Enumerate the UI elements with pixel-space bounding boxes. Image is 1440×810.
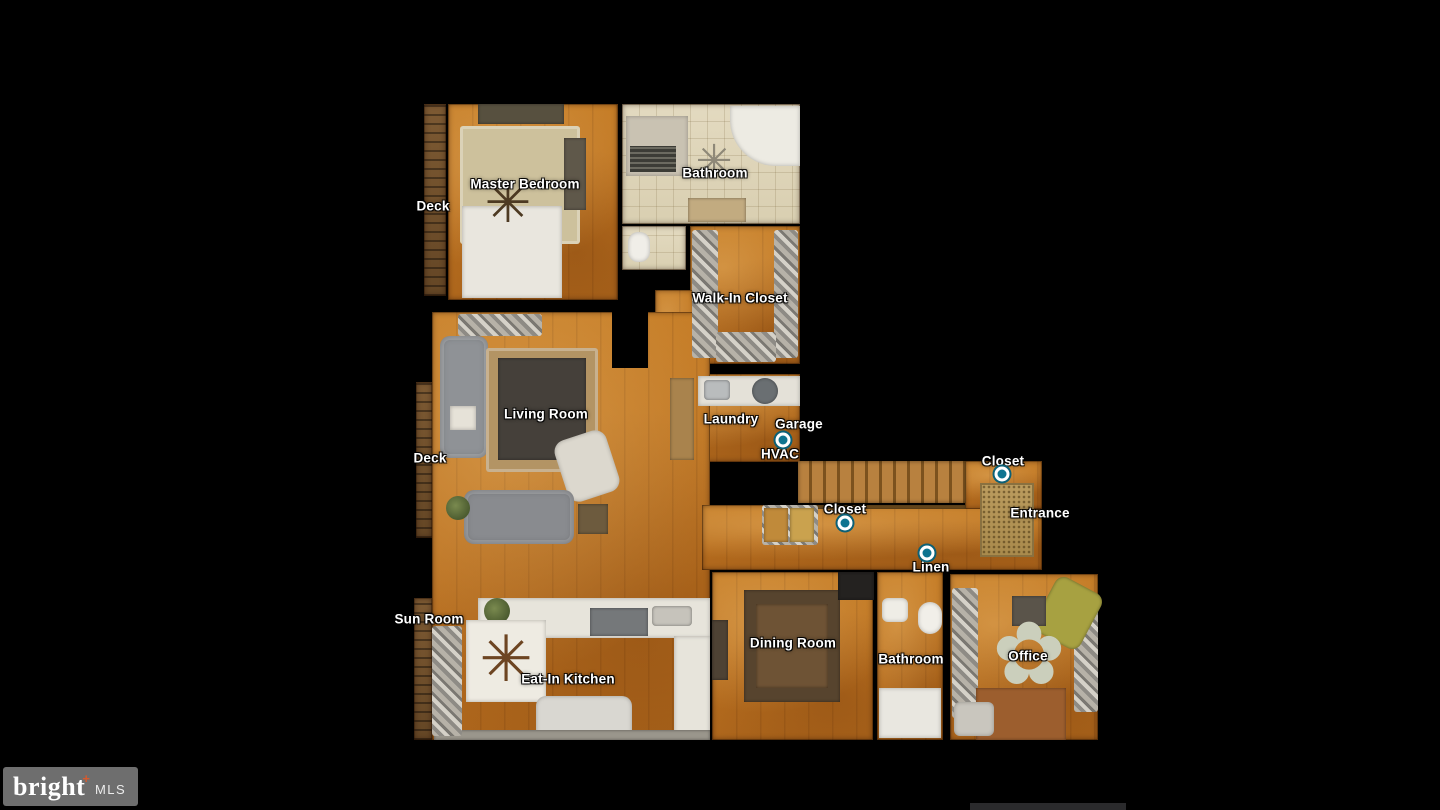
furn-wc-toilet (628, 232, 650, 262)
furn-kt-counter-right (674, 636, 710, 736)
furn-hall-closet-item-a (764, 508, 788, 542)
label-living-room: Living Room (504, 407, 588, 422)
wall-stub-living (612, 312, 648, 368)
furn-ld-washer (752, 378, 778, 404)
furn-b2-sink (882, 598, 908, 622)
logo-plus-icon: + (82, 771, 90, 786)
furn-sr-items (432, 626, 462, 736)
floorplan[interactable]: ✳✳✳✿Master BedroomBathroomDeckWalk-In Cl… (0, 0, 1440, 810)
furn-kt-ledge (434, 730, 710, 740)
logo-suffix-text: MLS (95, 782, 126, 797)
label-sun-room: Sun Room (394, 612, 463, 627)
label-bathroom-top: Bathroom (682, 166, 747, 181)
furn-wic-clothes-bottom (716, 332, 776, 362)
label-office: Office (1008, 649, 1047, 664)
furn-of-clutter-left (952, 588, 978, 718)
furn-lr-shelf (458, 314, 542, 336)
label-master-bedroom: Master Bedroom (470, 177, 579, 192)
furn-hall-stairs (798, 461, 966, 503)
marker-linen[interactable] (923, 549, 932, 558)
furn-lr-sofa-left (440, 336, 488, 458)
furn-dr-buffet (712, 620, 728, 680)
furn-mb-cabinet (564, 138, 586, 210)
marker-garage-hvac[interactable] (779, 436, 788, 445)
label-eat-in-kitchen: Eat-In Kitchen (521, 672, 615, 687)
label-entrance: Entrance (1010, 506, 1069, 521)
label-bathroom-bottom: Bathroom (878, 652, 943, 667)
furn-kt-sink-top (652, 606, 692, 626)
furn-of-tv (954, 702, 994, 736)
label-walk-in-closet: Walk-In Closet (692, 291, 787, 306)
label-linen: Linen (913, 560, 950, 575)
furn-lr-plant (446, 496, 470, 520)
logo-brand-text: bright (13, 772, 85, 802)
furn-ld-sink (704, 380, 730, 400)
label-deck-mid: Deck (413, 451, 446, 466)
furn-bath-vanity (688, 198, 746, 222)
brightmls-logo: bright+MLS (3, 767, 138, 806)
furn-bath-grate (630, 146, 676, 172)
furn-mb-dresser (478, 104, 564, 124)
bottom-scrollbar[interactable] (970, 803, 1126, 810)
label-deck-top: Deck (416, 199, 449, 214)
furn-lr-side-table (578, 504, 608, 534)
furn-ld-door (670, 378, 694, 460)
furn-kt-stove (590, 608, 648, 636)
furn-lr-sofa-bottom (464, 490, 574, 544)
furn-dr-chair-dark (838, 572, 874, 600)
furn-b2-tub (879, 688, 941, 738)
label-closet-hall: Closet (824, 502, 866, 517)
label-dining-room: Dining Room (750, 636, 836, 651)
viewer-stage: ✳✳✳✿Master BedroomBathroomDeckWalk-In Cl… (0, 0, 1440, 810)
marker-closet-hall[interactable] (841, 519, 850, 528)
furn-hall-closet-item-b (790, 508, 814, 542)
label-closet-entrance: Closet (982, 454, 1024, 469)
furn-lr-console (450, 406, 476, 430)
label-laundry: Laundry (704, 412, 759, 427)
label-garage: Garage (775, 417, 823, 432)
furn-b2-toilet (918, 602, 942, 634)
marker-closet-entrance[interactable] (998, 470, 1007, 479)
label-hvac: HVAC (761, 447, 799, 462)
